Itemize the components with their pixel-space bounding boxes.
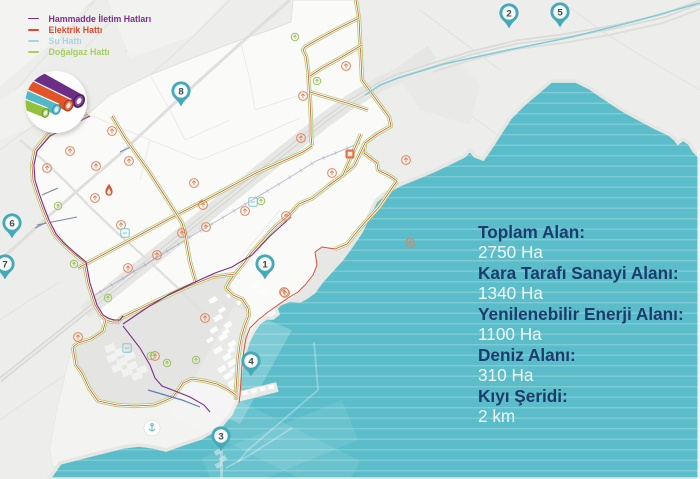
svg-text:2: 2: [506, 8, 511, 19]
svg-text:7: 7: [2, 259, 7, 270]
svg-text:8: 8: [178, 86, 184, 97]
svg-text:5: 5: [557, 7, 563, 18]
svg-text:1: 1: [262, 259, 268, 270]
svg-text:3: 3: [218, 431, 223, 442]
svg-text:4: 4: [248, 356, 254, 367]
svg-text:6: 6: [9, 218, 14, 229]
